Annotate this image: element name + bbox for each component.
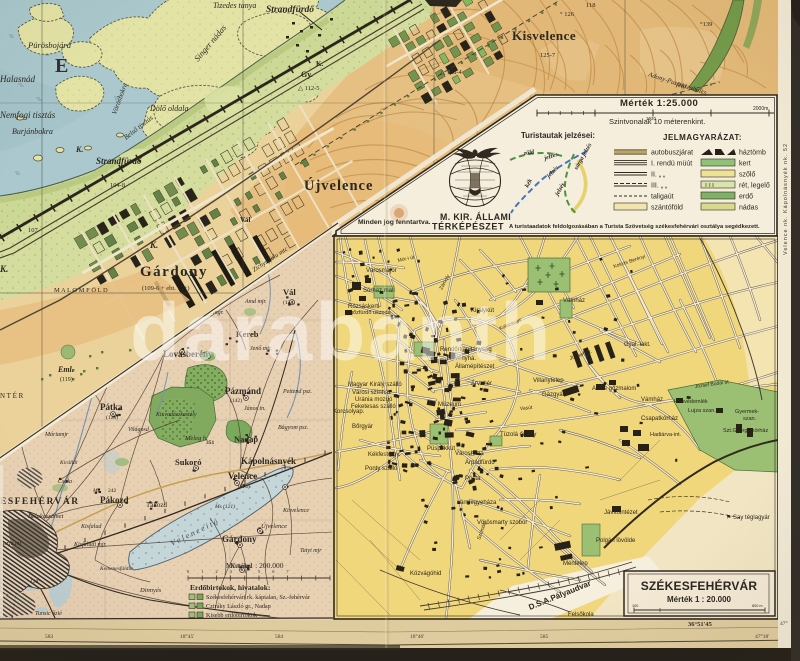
- svg-text:darabanth: darabanth: [130, 287, 553, 378]
